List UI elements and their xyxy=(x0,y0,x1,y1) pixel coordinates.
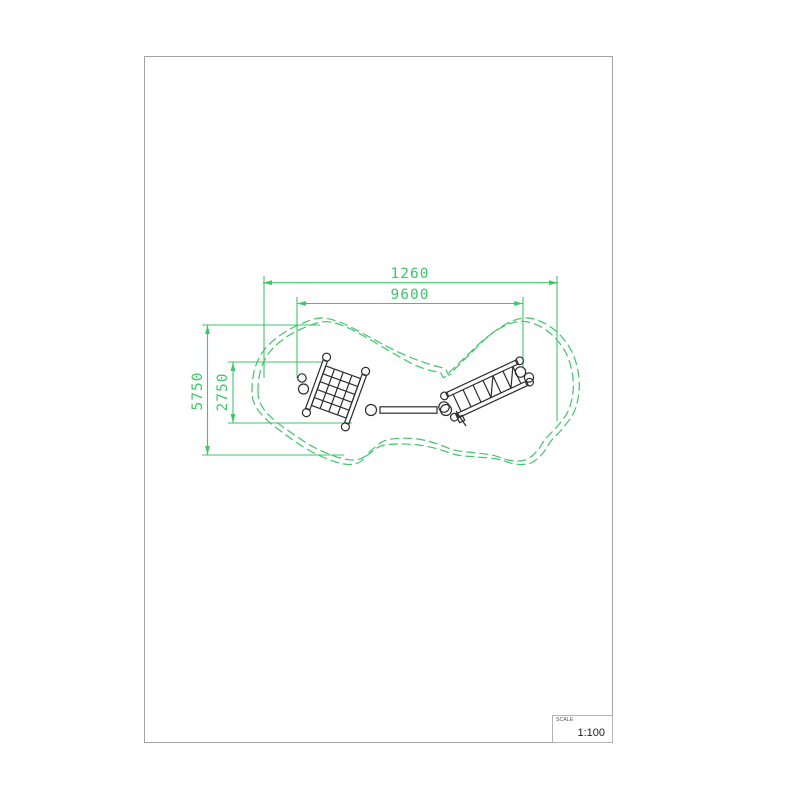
dimension-inner-width: 9600 xyxy=(297,287,523,378)
dim-label-total-height: 5750 xyxy=(190,372,206,411)
net-grid-line xyxy=(463,390,471,407)
scale-value: 1:100 xyxy=(577,727,605,739)
dim-label-total-width: 1260 xyxy=(391,266,430,282)
post-circle xyxy=(524,373,533,382)
net-grid-line xyxy=(473,385,481,402)
net-climber-right xyxy=(439,356,535,426)
plan-drawing: 1260 9600 5750 2750 xyxy=(0,0,800,800)
beam-post-right xyxy=(441,405,452,416)
beam-post-left xyxy=(366,405,377,416)
net-grid-line xyxy=(483,380,491,397)
post-circle xyxy=(299,384,309,394)
title-block-scale: SCALE 1:100 xyxy=(552,715,613,743)
scale-label: SCALE xyxy=(556,717,573,723)
post-circle xyxy=(515,367,525,377)
net-grid-line xyxy=(493,376,501,393)
dim-label-inner-height: 2750 xyxy=(215,373,231,412)
canvas: { "sheet": { "background": "#ffffff", "b… xyxy=(0,0,800,800)
net-grid-line xyxy=(453,394,461,411)
safety-area-outline-outer xyxy=(252,318,579,465)
post-circle xyxy=(298,374,306,382)
net-climber-left xyxy=(298,352,371,432)
dim-label-inner-width: 9600 xyxy=(391,287,430,303)
post-circle xyxy=(439,402,449,412)
dimension-inner-height: 2750 xyxy=(215,362,352,423)
dimension-total-height: 5750 xyxy=(190,325,344,455)
safety-area-outline-inner xyxy=(258,321,573,461)
beam-plank xyxy=(380,407,437,413)
net-grid-line xyxy=(503,371,511,388)
